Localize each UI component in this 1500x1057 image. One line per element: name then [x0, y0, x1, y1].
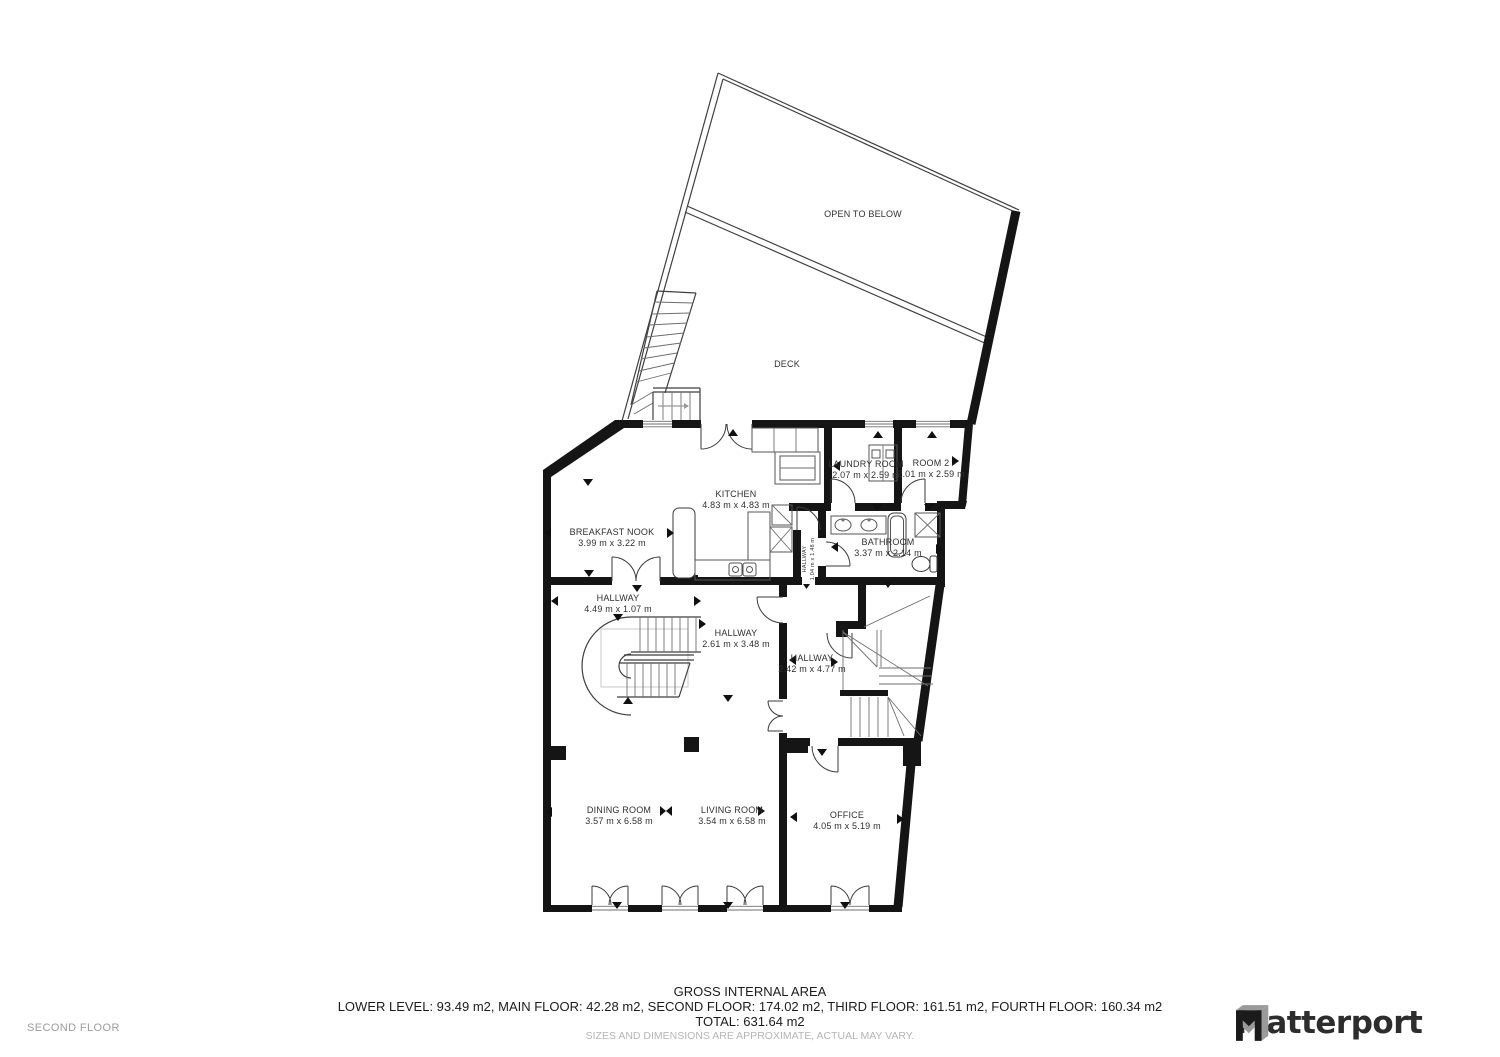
- room-label-breakfast-nook: BREAKFAST NOOK: [570, 527, 655, 537]
- floorplan-svg: OPEN TO BELOW DECK KITCHEN 4.83 m x 4.83…: [0, 0, 1500, 1057]
- room-label-laundry: LAUNDRY ROOM: [828, 459, 904, 469]
- room-dims-hallway-2: 2.61 m x 3.48 m: [702, 639, 770, 649]
- room-label-room2: ROOM 2: [913, 458, 950, 468]
- matterport-icon: [1236, 1002, 1270, 1044]
- room-label-hallway-2: HALLWAY: [715, 628, 758, 638]
- vanity-counter: [831, 516, 886, 534]
- room-dims-hallway-3: 2.42 m x 4.77 m: [778, 664, 846, 674]
- room-label-hallway-1: HALLWAY: [597, 593, 640, 603]
- floorplan-page: OPEN TO BELOW DECK KITCHEN 4.83 m x 4.83…: [0, 0, 1500, 1057]
- gross-internal-area-title: GROSS INTERNAL AREA: [0, 984, 1500, 999]
- room-label-office: OFFICE: [830, 810, 864, 820]
- room-label-hallway-small: HALLWAY: [802, 546, 808, 573]
- kitchen-upper-counter: [752, 428, 818, 452]
- room-dims-dining: 3.57 m x 6.58 m: [585, 816, 653, 826]
- toilet: [912, 557, 930, 572]
- room-label-kitchen: KITCHEN: [716, 489, 757, 499]
- fridge: [673, 508, 695, 578]
- room-dims-office: 4.05 m x 5.19 m: [813, 821, 881, 831]
- deck-outline: [622, 73, 1019, 424]
- room-dims-bathroom: 3.37 m x 2.14 m: [854, 548, 922, 558]
- spiral-staircase: [582, 617, 701, 715]
- floor-label: SECOND FLOOR: [27, 1022, 120, 1034]
- room-label-living: LIVING ROOM: [701, 805, 763, 815]
- exterior-walls: [543, 420, 972, 912]
- room-label-hallway-3: HALLWAY: [791, 653, 834, 663]
- matterport-logo: Matterport: [1236, 1002, 1422, 1044]
- room-label-open-to-below: OPEN TO BELOW: [824, 209, 902, 219]
- room-dims-living: 3.54 m x 6.58 m: [698, 816, 766, 826]
- room-dims-kitchen: 4.83 m x 4.83 m: [702, 500, 770, 510]
- room-dims-laundry: 2.07 m x 2.59 m: [832, 470, 900, 480]
- deck-stairs: [631, 291, 700, 420]
- room-label-bathroom: BATHROOM: [862, 537, 915, 547]
- room-dims-breakfast-nook: 3.99 m x 3.22 m: [578, 538, 646, 548]
- room-dims-hallway-1: 4.49 m x 1.07 m: [584, 604, 652, 614]
- room-label-dining: DINING ROOM: [587, 805, 651, 815]
- room-dims-hallway-small: 1.04 m x 1.48 m: [810, 538, 816, 581]
- room-label-deck: DECK: [774, 359, 800, 369]
- kitchen-sink: [729, 563, 742, 576]
- room-dims-room2: 2.01 m x 2.59 m: [897, 469, 965, 479]
